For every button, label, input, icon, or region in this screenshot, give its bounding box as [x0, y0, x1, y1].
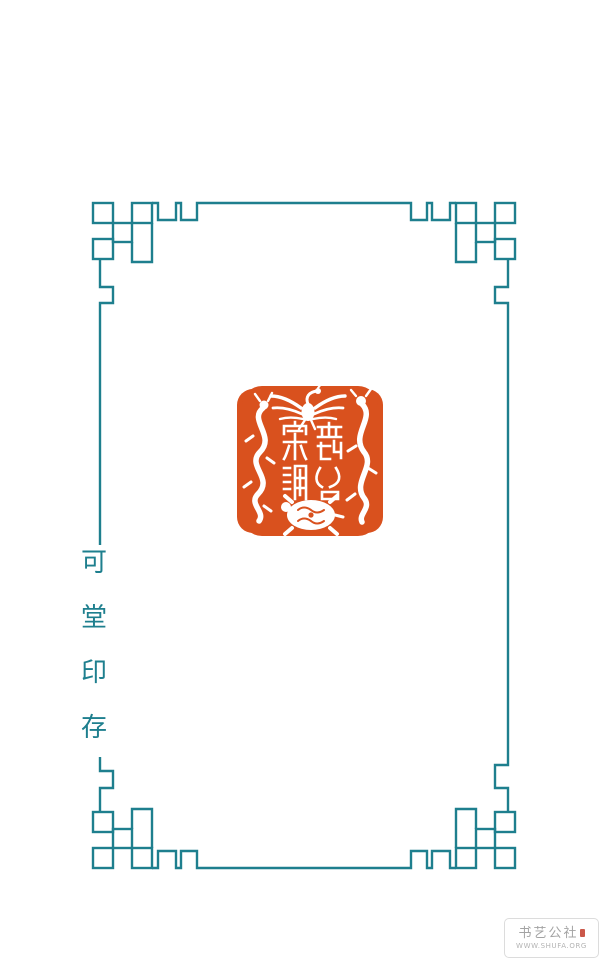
corner-bottom-left	[93, 809, 152, 868]
side-title-char: 印	[81, 659, 107, 687]
side-title-char: 堂	[81, 604, 107, 632]
border-right-edge	[495, 259, 508, 812]
corner-top-right	[456, 203, 515, 262]
watermark: 书艺公社 WWW.SHUFA.ORG	[504, 918, 599, 958]
plate-artwork-svg	[0, 0, 605, 964]
watermark-site-url: WWW.SHUFA.ORG	[516, 941, 587, 951]
border-left-edge-upper	[100, 259, 113, 545]
side-title-char: 可	[81, 549, 107, 577]
tortoise-shell-dot	[308, 512, 313, 517]
side-title-vertical: 可 堂 印 存	[79, 549, 109, 742]
corner-bottom-right	[456, 809, 515, 868]
border-left-edge-lower	[100, 757, 113, 812]
watermark-seal-icon	[580, 929, 585, 937]
watermark-site-name: 书艺公社	[518, 926, 578, 941]
border-bottom-edge	[152, 851, 456, 868]
seal-catalog-plate: 可 堂 印 存 书艺公社 WWW.SHUFA.ORG	[0, 0, 605, 964]
watermark-site-name-row: 书艺公社	[518, 926, 584, 941]
seal-impression	[237, 383, 383, 536]
side-title-char: 存	[81, 714, 107, 742]
corner-top-left	[93, 203, 152, 262]
border-top-edge	[152, 203, 456, 220]
